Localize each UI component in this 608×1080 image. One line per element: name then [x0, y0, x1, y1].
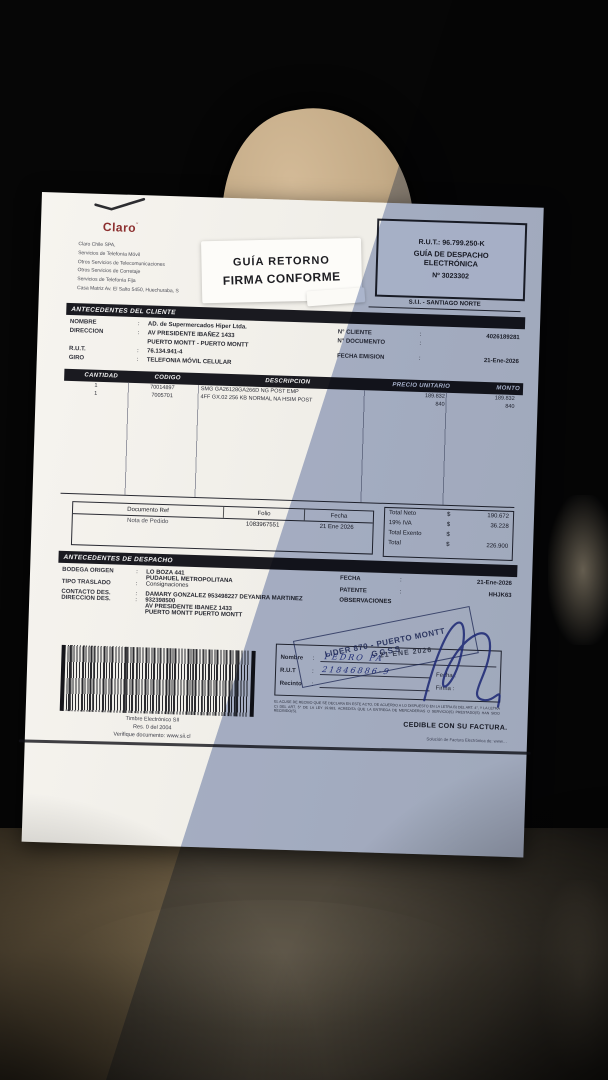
items-table-body: 1 70014897 SMG GA26128GA266D NG POST EMP…: [61, 381, 518, 508]
table-cell-codigo: 7005701: [128, 391, 197, 401]
reference-header-cell: Documento Ref: [73, 505, 223, 516]
provider-footer: Solución de Factura Electrónica de: www…: [325, 733, 507, 744]
colon: :: [137, 330, 147, 339]
client-giro: TELEFONIA MÓVIL CELULAR: [147, 357, 232, 369]
table-cell-precio: 840: [364, 398, 449, 409]
field-label: PATENTE: [340, 588, 400, 596]
paper-document: Claro˘ Claro Chile SPA, Servicios de Tel…: [22, 192, 544, 857]
colon: :: [419, 356, 429, 365]
field-label: FECHA EMISION: [337, 353, 419, 365]
client-fields: NOMBRE:AD. de Supermercados Hiper Ltda. …: [69, 319, 320, 372]
pdf417-barcode: [60, 645, 256, 717]
cedible-label: CEDIBLE CON SU FACTURA.: [355, 720, 507, 732]
table-header-cell: MONTO: [454, 384, 523, 392]
claro-logo: Claro˘: [103, 220, 139, 235]
timbre-caption: Timbre Electrónico SII Res. 0 del 2004 V…: [59, 714, 246, 744]
reference-header-cell: Fecha: [305, 512, 373, 520]
field-label: N° DOCUMENTO: [337, 338, 419, 350]
table-header-cell: CANTIDAD: [69, 372, 133, 380]
emission-date: 21-Ene-2026: [429, 356, 519, 368]
colon: :: [137, 348, 147, 357]
client-document-fields: N° CLIENTE:4026189281 N° DOCUMENTO: FECH…: [337, 329, 520, 368]
reference-box: Documento Ref Folio Fecha Nota de Pedido…: [71, 501, 374, 554]
table-header-cell: CODIGO: [133, 374, 202, 382]
colon: :: [420, 332, 430, 341]
document-number: Nº 3023302: [432, 273, 469, 281]
reference-date: 21 Ene 2026: [303, 523, 371, 531]
field-label: GIRO: [69, 355, 137, 366]
reference-folio: 1083967551: [223, 521, 303, 530]
colon: [137, 339, 147, 348]
document-number-value: [429, 341, 519, 353]
rut-box: R.U.T.: 96.799.250-K GUÍA DE DESPACHO EL…: [375, 219, 527, 302]
signature-ink: [416, 600, 519, 715]
vehicle-plate: HHJK63: [409, 590, 511, 599]
seat-side-patch: [540, 880, 608, 1070]
dispatch-fields-left: BODEGA ORIGEN:LO BOZA 441 PUDAHUEL METRO…: [61, 567, 332, 621]
blank-sticker: [306, 287, 365, 306]
total-value: 226.900: [460, 542, 508, 554]
colon: :: [138, 321, 148, 330]
seat-fold-highlight: [60, 900, 480, 1030]
dispatch-date: 21-Ene-2026: [410, 578, 512, 587]
totals-box: Total Neto$190.672 19% IVA$36.228 Total …: [383, 507, 515, 561]
table-cell-monto: 840: [448, 401, 517, 411]
pen-checkmark: [93, 196, 145, 214]
field-label: FECHA: [340, 576, 400, 584]
seat-side-patch: [548, 495, 608, 645]
colon: :: [419, 341, 429, 350]
sticker-line: FIRMA CONFORME: [223, 269, 341, 288]
document-type: GUÍA DE DESPACHO ELECTRÓNICA: [413, 248, 489, 269]
reference-header-cell: Folio: [223, 507, 305, 521]
colon: :: [137, 357, 147, 366]
transfer-type: Consignaciones: [146, 581, 189, 588]
car-interior-photo: Claro˘ Claro Chile SPA, Servicios de Tel…: [0, 0, 608, 1080]
table-header-cell: PRECIO UNITARIO: [369, 381, 454, 390]
barcode-pattern: [66, 645, 250, 717]
issuer-rut: R.U.T.: 96.799.250-K: [418, 238, 484, 247]
field-label: TIPO TRASLADO: [62, 579, 136, 587]
claro-logo-accent: ˘: [136, 223, 139, 229]
table-cell-cantidad: 1: [64, 389, 128, 399]
sticker-line: GUÍA RETORNO: [233, 255, 330, 269]
